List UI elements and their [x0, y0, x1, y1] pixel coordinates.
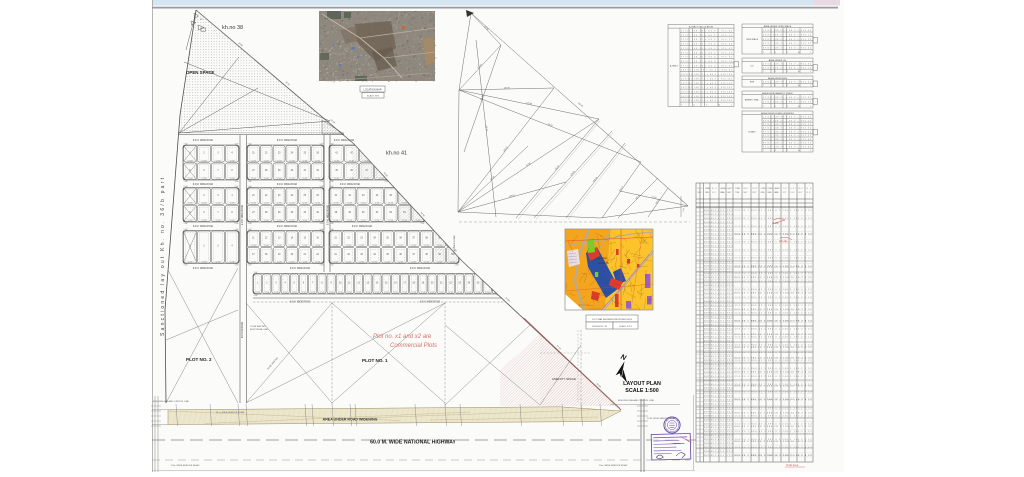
svg-text:20/9 45.2 x 3.1 172.5: 20/9 45.2 x 3.1 172.5 — [704, 455, 733, 457]
svg-text:12.5M: 12.5M — [411, 292, 416, 294]
svg-text:12.5M: 12.5M — [251, 261, 256, 263]
svg-text:20/1 45.2 x 3.1 172.5: 20/1 45.2 x 3.1 172.5 — [704, 423, 733, 425]
svg-text:HECT: HECT — [728, 188, 734, 190]
svg-text:12.5M: 12.5M — [216, 220, 221, 222]
svg-text:BUILDING LINE AND CONTROL LINE: BUILDING LINE AND CONTROL LINE — [618, 399, 654, 402]
svg-text:12.5M: 12.5M — [361, 220, 366, 222]
svg-text:9.0M: 9.0M — [320, 265, 324, 267]
svg-text:12.5M: 12.5M — [315, 220, 320, 222]
svg-text:17/10 148.20 x 66.3 = 915: 17/10 148.20 x 66.3 = 915.02 — [681, 31, 732, 33]
svg-text:20/2 45.2 x 3.1 172.5: 20/2 45.2 x 3.1 172.5 — [704, 427, 733, 429]
svg-text:9.0M: 9.0M — [235, 186, 239, 188]
svg-text:157/114 148.214 x 66.3 =: 157/114 148.214 x 66.3 = 915.142 — [681, 92, 732, 94]
svg-text:20/8 45.2 x 3.1 172.5: 20/8 45.2 x 3.1 172.5 — [704, 344, 733, 346]
svg-text:860.45 1 385.20 1 246.18: 860.45 1 385.20 1 246.18 1 134.20 98.2 8… — [735, 347, 813, 349]
svg-text:12.5M: 12.5M — [188, 160, 193, 162]
svg-text:57/14 148.24 x 66.3 = 915: 57/14 148.24 x 66.3 = 915.42 — [763, 48, 811, 50]
svg-text:Total area: Total area — [786, 463, 799, 467]
svg-text:12.5M: 12.5M — [188, 261, 193, 263]
svg-text:SCALE 1:500: SCALE 1:500 — [625, 388, 659, 394]
svg-text:SNO: SNO — [698, 188, 704, 190]
svg-text:9.0 M. WIDE ROAD: 9.0 M. WIDE ROAD — [277, 139, 298, 142]
svg-text:137/112 148.212 x 66.3 =: 137/112 148.212 x 66.3 = 915.122 — [681, 83, 732, 85]
svg-text:20/8 45.2 x 3.1 172.5: 20/8 45.2 x 3.1 172.5 — [704, 309, 733, 311]
svg-text:12.5M: 12.5M — [359, 245, 364, 247]
svg-text:17/10 148.20 x 66.3 = 915: 17/10 148.20 x 66.3 = 915.02 — [763, 97, 811, 99]
svg-text:20/3 45.2 x 3.1 172.5: 20/3 45.2 x 3.1 172.5 — [704, 360, 733, 362]
svg-text:NET: NET — [744, 188, 750, 190]
svg-text:12.5M: 12.5M — [372, 261, 377, 263]
svg-text:9.0M: 9.0M — [320, 181, 324, 183]
svg-text:20/5 45.2 x 3.1 172.5: 20/5 45.2 x 3.1 172.5 — [704, 332, 733, 334]
svg-text:20/8 45.2 x 3.1 172.5: 20/8 45.2 x 3.1 172.5 — [704, 380, 733, 382]
svg-text:PLOT: PLOT — [753, 188, 759, 190]
svg-text:12.5M: 12.5M — [365, 292, 370, 294]
svg-text:20/8 45.2 x 3.1 172.5: 20/8 45.2 x 3.1 172.5 — [704, 238, 733, 240]
svg-text:12m. WIDE SERVICE ROAD: 12m. WIDE SERVICE ROAD — [171, 464, 200, 467]
svg-text:LIG: LIG — [750, 66, 754, 68]
svg-text:ELECTRICAL LINE: ELECTRICAL LINE — [250, 328, 269, 331]
svg-text:20/8 45.2 x 3.1 172.5: 20/8 45.2 x 3.1 172.5 — [704, 415, 733, 417]
svg-text:12.5M: 12.5M — [334, 203, 339, 205]
svg-text:12 M. WIDE SERVICE ROAD: 12 M. WIDE SERVICE ROAD — [647, 417, 676, 420]
svg-text:154.20 1 860.45 1 385.0 1 246.: 154.20 1 860.45 1 385.0 1 246.1 134.2 8 … — [735, 250, 813, 252]
svg-text:20/9 45.2 x 3.1 172.5: 20/9 45.2 x 3.1 172.5 — [704, 242, 733, 244]
svg-text:12.5M: 12.5M — [292, 292, 297, 294]
svg-text:12.5M: 12.5M — [448, 292, 453, 294]
svg-text:27/11 148.21 x 66.3 = 915: 27/11 148.21 x 66.3 = 915.12 — [763, 67, 811, 69]
svg-text:20/3 45.2 x 3.1 172.5: 20/3 45.2 x 3.1 172.5 — [704, 218, 733, 220]
svg-text:12.5M: 12.5M — [216, 261, 221, 263]
svg-text:12.5M: 12.5M — [320, 292, 325, 294]
svg-text:12.5M: 12.5M — [347, 220, 352, 222]
svg-text:9.0M: 9.0M — [421, 223, 425, 225]
svg-text:860.45 1 385.20 1 246.18: 860.45 1 385.20 1 246.18 1 134.20 98.2 8… — [735, 426, 813, 428]
svg-text:120.59: 120.59 — [503, 87, 510, 89]
svg-text:20/7 45.2 x 3.1 172.5: 20/7 45.2 x 3.1 172.5 — [704, 340, 733, 342]
svg-text:12.5M: 12.5M — [385, 245, 390, 247]
svg-text:12.5M: 12.5M — [457, 292, 462, 294]
svg-text:12.5M: 12.5M — [202, 220, 207, 222]
svg-text:AREA UNDER EWS: AREA UNDER EWS — [768, 77, 787, 80]
svg-text:AREA UNDER ROADS WIDENING: AREA UNDER ROADS WIDENING — [761, 112, 794, 115]
svg-text:17/10 148.20 x 66.3 = 915: 17/10 148.20 x 66.3 = 915.02 — [763, 30, 811, 32]
svg-text:9.0 M. WIDE ROAD: 9.0 M. WIDE ROAD — [334, 139, 355, 142]
svg-text:20/7 45.2 x 3.1 172.5: 20/7 45.2 x 3.1 172.5 — [704, 234, 733, 236]
svg-text:20/9 45.2 x 3.1 172.5: 20/9 45.2 x 3.1 172.5 — [704, 419, 733, 421]
svg-text:12.5M: 12.5M — [338, 292, 343, 294]
svg-text:LAYOUT PLAN: LAYOUT PLAN — [623, 381, 661, 387]
svg-text:20/5 45.2 x 3.1 172.5: 20/5 45.2 x 3.1 172.5 — [704, 368, 733, 370]
svg-text:PLOT NO. 1: PLOT NO. 1 — [362, 358, 388, 363]
svg-text:12m. WIDE SERVICE ROAD: 12m. WIDE SERVICE ROAD — [599, 464, 628, 467]
svg-text:12.5M: 12.5M — [384, 292, 389, 294]
svg-text:12.5M: 12.5M — [346, 261, 351, 263]
svg-text:12.5M: 12.5M — [290, 178, 295, 180]
svg-text:SITE/KH.NO. 38: SITE/KH.NO. 38 — [592, 326, 608, 328]
svg-text:154.20 1 860.45 1 385.0 1 246.: 154.20 1 860.45 1 385.0 1 246.1 134.2 8 … — [735, 360, 813, 362]
svg-text:Plot no. x1 and x2 are: Plot no. x1 and x2 are — [373, 334, 432, 340]
svg-text:9.0M: 9.0M — [320, 223, 324, 225]
svg-text:AREA UNDER OPEN SPACE: AREA UNDER OPEN SPACE — [764, 25, 792, 28]
svg-text:9.0M: 9.0M — [385, 181, 389, 183]
svg-text:20/6 45.2 x 3.1 172.5: 20/6 45.2 x 3.1 172.5 — [704, 265, 733, 267]
svg-text:12.5M: 12.5M — [439, 292, 444, 294]
svg-text:20/8 45.2 x 3.1 172.5: 20/8 45.2 x 3.1 172.5 — [704, 451, 733, 453]
svg-text:12.5M: 12.5M — [315, 160, 320, 162]
svg-text:117/110 148.210 x 66.3 =: 117/110 148.210 x 66.3 = 915.102 — [681, 74, 732, 76]
svg-text:9.0M: 9.0M — [235, 229, 239, 231]
svg-text:12.5M: 12.5M — [290, 261, 295, 263]
svg-text:12.5M: 12.5M — [302, 245, 307, 247]
svg-text:20/9 45.2 x 3.1 172.5: 20/9 45.2 x 3.1 172.5 — [704, 384, 733, 386]
svg-text:12.5M: 12.5M — [264, 160, 269, 162]
svg-text:12.5M: 12.5M — [411, 245, 416, 247]
svg-text:BLT: BLT — [799, 188, 805, 190]
svg-text:20/7 45.2 x 3.1 172.5: 20/7 45.2 x 3.1 172.5 — [704, 447, 733, 449]
svg-text:12.5M: 12.5M — [301, 292, 306, 294]
svg-text:FSI: FSI — [791, 188, 796, 190]
svg-text:12.5M: 12.5M — [393, 292, 398, 294]
svg-text:9.0M: 9.0M — [184, 181, 188, 183]
svg-text:12.5M: 12.5M — [361, 203, 366, 205]
svg-text:20/7 45.2 x 3.1 172.5: 20/7 45.2 x 3.1 172.5 — [704, 411, 733, 413]
svg-text:154.20 1 860.45 1 385.0 1 246.: 154.20 1 860.45 1 385.0 1 246.1 134.2 8 … — [735, 329, 813, 331]
svg-text:12.5M: 12.5M — [202, 160, 207, 162]
svg-text:154.20 1 860.45 1 385.0 1 246.: 154.20 1 860.45 1 385.0 1 246.1 134.2 8 … — [735, 408, 813, 410]
svg-text:154.20 1 860.45 1 385.0 1 246.: 154.20 1 860.45 1 385.0 1 246.1 134.2 8 … — [735, 242, 813, 244]
svg-text:167/115 148.215 x 66.3 =: 167/115 148.215 x 66.3 = 915.152 — [681, 96, 732, 98]
svg-text:9.0 M. WIDE ROAD: 9.0 M. WIDE ROAD — [410, 267, 431, 270]
svg-text:20/4 45.2 x 3.1 172.5: 20/4 45.2 x 3.1 172.5 — [704, 400, 733, 402]
svg-text:12 m. WIDE SERVICE ROAD: 12 m. WIDE SERVICE ROAD — [216, 411, 245, 414]
svg-text:TOT: TOT — [783, 188, 789, 190]
svg-text:20/1 45.2 x 3.1 172.5: 20/1 45.2 x 3.1 172.5 — [704, 317, 733, 319]
svg-text:20/7 45.2 x 3.1 172.5: 20/7 45.2 x 3.1 172.5 — [704, 269, 733, 271]
svg-text:AMENITY SPACE: AMENITY SPACE — [552, 377, 576, 381]
svg-text:12.5M: 12.5M — [277, 203, 282, 205]
svg-text:12.5M: 12.5M — [264, 245, 269, 247]
svg-text:12.5M: 12.5M — [290, 203, 295, 205]
svg-text:12.5M: 12.5M — [277, 178, 282, 180]
svg-text:12.5M: 12.5M — [372, 245, 377, 247]
svg-text:12.5M: 12.5M — [188, 203, 193, 205]
svg-text:12.5M: 12.5M — [251, 245, 256, 247]
svg-text:20/3 45.2 x 3.1 172.5: 20/3 45.2 x 3.1 172.5 — [704, 289, 733, 291]
svg-text:20/4 45.2 x 3.1 172.5: 20/4 45.2 x 3.1 172.5 — [704, 364, 733, 366]
svg-text:12.5M: 12.5M — [424, 261, 429, 263]
svg-text:ROAD: ROAD — [768, 187, 774, 190]
svg-text:154.20 1 860.45 1 385.0 1 246.: 154.20 1 860.45 1 385.0 1 246.1 134.2 8 … — [735, 210, 813, 212]
svg-text:20/3 45.2 x 3.1 172.5: 20/3 45.2 x 3.1 172.5 — [704, 396, 733, 398]
svg-text:12.5M: 12.5M — [347, 292, 352, 294]
svg-text:154.20 1 860.45 1 385.0 1 246.: 154.20 1 860.45 1 385.0 1 246.1 134.2 8 … — [735, 273, 813, 275]
svg-text:9.0M: 9.0M — [248, 223, 252, 225]
svg-text:12.5M: 12.5M — [329, 292, 334, 294]
svg-text:20/2 45.2 x 3.1 172.5: 20/2 45.2 x 3.1 172.5 — [704, 392, 733, 394]
svg-text:KATCHA ROAD: KATCHA ROAD — [241, 322, 244, 339]
svg-text:12.5M: 12.5M — [315, 203, 320, 205]
svg-text:37/12 148.22 x 66.3 = 915: 37/12 148.22 x 66.3 = 915.22 — [763, 124, 811, 126]
svg-text:154.20 1 860.45 1 385.0 1 246.: 154.20 1 860.45 1 385.0 1 246.1 134.2 8 … — [735, 281, 813, 283]
svg-text:NO: NO — [712, 188, 718, 190]
svg-text:12.5M: 12.5M — [290, 220, 295, 222]
svg-text:20/4 45.2 x 3.1 172.5: 20/4 45.2 x 3.1 172.5 — [704, 257, 733, 259]
svg-text:27/11 148.21 x 66.3 = 915: 27/11 148.21 x 66.3 = 915.12 — [763, 120, 811, 122]
svg-text:860.45 1 385.20 1 246.18: 860.45 1 385.20 1 246.18 1 134.20 98.2 8… — [735, 293, 813, 295]
svg-text:12.5M: 12.5M — [388, 203, 393, 205]
svg-text:12.5M: 12.5M — [424, 245, 429, 247]
svg-text:154.20 1 860.45 1 385.0 1 246.: 154.20 1 860.45 1 385.0 1 246.1 134.2 8 … — [735, 226, 813, 228]
svg-text:12.5M: 12.5M — [315, 245, 320, 247]
svg-text:9.0M: 9.0M — [235, 223, 239, 225]
svg-text:12.5M: 12.5M — [216, 160, 221, 162]
svg-text:20/2 45.2 x 3.1 172.5: 20/2 45.2 x 3.1 172.5 — [704, 285, 733, 287]
svg-text:9.0M: 9.0M — [235, 143, 239, 145]
svg-text:12.5M: 12.5M — [302, 178, 307, 180]
svg-text:67/15 148.25 x 66.3 = 915: 67/15 148.25 x 66.3 = 915.52 — [763, 135, 811, 137]
svg-text:9.0M: 9.0M — [184, 223, 188, 225]
svg-text:ward 15: ward 15 — [598, 261, 609, 265]
svg-text:9.0M: 9.0M — [235, 265, 239, 267]
svg-text:60.0 M. WIDE NATIONAL HIGHWAY: 60.0 M. WIDE NATIONAL HIGHWAY — [370, 440, 456, 446]
svg-text:9.0 M. WIDE ROAD: 9.0 M. WIDE ROAD — [352, 225, 373, 228]
svg-text:20/5 45.2 x 3.1 172.5: 20/5 45.2 x 3.1 172.5 — [704, 404, 733, 406]
svg-text:12.5M: 12.5M — [347, 203, 352, 205]
svg-text:12.5M: 12.5M — [356, 292, 361, 294]
svg-text:860.45 1 385.20 1 246.18: 860.45 1 385.20 1 246.18 1 134.20 98.2 8… — [735, 372, 813, 374]
svg-text:12.5M: 12.5M — [202, 178, 207, 180]
svg-text:20/2 45.2 x 3.1 172.5: 20/2 45.2 x 3.1 172.5 — [704, 250, 733, 252]
svg-text:20/7 45.2 x 3.1 172.5: 20/7 45.2 x 3.1 172.5 — [704, 305, 733, 307]
svg-text:FSI: FSI — [791, 192, 795, 194]
svg-text:A-TRACT CALCULATION: A-TRACT CALCULATION — [689, 25, 713, 28]
svg-text:12.5M: 12.5M — [290, 160, 295, 162]
svg-text:9.0 M. WIDE ROAD: 9.0 M. WIDE ROAD — [277, 225, 298, 228]
svg-text:20/5 45.2 x 3.1 172.5: 20/5 45.2 x 3.1 172.5 — [704, 297, 733, 299]
svg-text:12.5M: 12.5M — [346, 245, 351, 247]
svg-text:9.0 M. WIDE ROAD: 9.0 M. WIDE ROAD — [277, 183, 298, 186]
svg-text:57/14 148.24 x 66.3 = 915: 57/14 148.24 x 66.3 = 915.42 — [681, 48, 732, 50]
svg-text:154.20 1 860.45 1 385.0 1 246.: 154.20 1 860.45 1 385.0 1 246.1 134.2 8 … — [735, 368, 813, 370]
svg-text:20/9 45.2 x 3.1 172.5: 20/9 45.2 x 3.1 172.5 — [704, 277, 733, 279]
svg-text:12.5M: 12.5M — [290, 245, 295, 247]
svg-text:AMENITY SPAC: AMENITY SPAC — [745, 99, 760, 102]
svg-text:37/12 148.22 x 66.3 = 915: 37/12 148.22 x 66.3 = 915.22 — [681, 39, 732, 41]
svg-text:20/2 45.2 x 3.1 172.5: 20/2 45.2 x 3.1 172.5 — [704, 356, 733, 358]
svg-text:87/17 148.27 x 66.3 = 915: 87/17 148.27 x 66.3 = 915.72 — [763, 143, 811, 145]
svg-text:20/4 45.2 x 3.1 172.5: 20/4 45.2 x 3.1 172.5 — [704, 435, 733, 437]
svg-text:20/6 45.2 x 3.1 172.5: 20/6 45.2 x 3.1 172.5 — [704, 301, 733, 303]
svg-text:77/16 148.26 x 66.3 = 915: 77/16 148.26 x 66.3 = 915.62 — [763, 139, 811, 141]
svg-text:kh.no 41: kh.no 41 — [386, 151, 407, 157]
svg-text:OPEN: OPEN — [761, 192, 766, 194]
svg-text:6.0 M. WIDE ROAD: 6.0 M. WIDE ROAD — [453, 235, 456, 255]
svg-text:12.5M: 12.5M — [411, 261, 416, 263]
svg-text:9.0 M. WIDE ROAD: 9.0 M. WIDE ROAD — [193, 225, 214, 228]
svg-text:27/11 148.21 x 66.3 = 915: 27/11 148.21 x 66.3 = 915.12 — [763, 102, 811, 104]
svg-text:12.5M: 12.5M — [334, 178, 339, 180]
svg-text:12.5M: 12.5M — [277, 245, 282, 247]
svg-text:9.0M: 9.0M — [235, 181, 239, 183]
svg-text:Gondal: Gondal — [597, 256, 607, 260]
svg-text:12.5M: 12.5M — [476, 292, 481, 294]
svg-text:860.45 1 385.20 1 246.18: 860.45 1 385.20 1 246.18 1 134.20 98.2 8… — [735, 358, 813, 360]
svg-text:ROADS: ROADS — [749, 131, 756, 134]
svg-text:20/9 45.2 x 3.1 172.5: 20/9 45.2 x 3.1 172.5 — [704, 313, 733, 315]
svg-text:LOCATION MAP: LOCATION MAP — [364, 88, 382, 91]
svg-text:12.5M: 12.5M — [230, 261, 235, 263]
svg-text:37/12 148.22 x 66.3 = 915: 37/12 148.22 x 66.3 = 915.22 — [763, 39, 811, 41]
svg-text:12.5M: 12.5M — [230, 178, 235, 180]
svg-text:12.5M: 12.5M — [467, 292, 472, 294]
svg-text:20/8 45.2 x 3.1 172.5: 20/8 45.2 x 3.1 172.5 — [704, 273, 733, 275]
svg-text:17/10 148.20 x 66.3 = 915: 17/10 148.20 x 66.3 = 915.02 — [763, 117, 811, 119]
svg-text:154.20 1 860.45 1 385.0 1 246.: 154.20 1 860.45 1 385.0 1 246.1 134.2 8 … — [735, 313, 813, 315]
svg-text:12.5M: 12.5M — [375, 203, 380, 205]
svg-text:20/6 45.2 x 3.1 172.5: 20/6 45.2 x 3.1 172.5 — [704, 443, 733, 445]
svg-text:20/1 45.2 x 3.1 172.5: 20/1 45.2 x 3.1 172.5 — [704, 246, 733, 248]
svg-text:20/1 45.2 x 3.1 172.5: 20/1 45.2 x 3.1 172.5 — [704, 352, 733, 354]
svg-text:860.45 1 385.20 1 246.18: 860.45 1 385.20 1 246.18 1 134.20 98.2 8… — [735, 321, 813, 323]
svg-text:860.45 1 385.20 1 246.18: 860.45 1 385.20 1 246.18 1 134.20 98.2 8… — [735, 309, 813, 311]
svg-text:154.20 1 860.45 1 385.0 1 246.: 154.20 1 860.45 1 385.0 1 246.1 134.2 8 … — [735, 305, 813, 307]
svg-text:BUILDING LINE AND CONTROL LINE: BUILDING LINE AND CONTROL LINE — [153, 400, 189, 403]
svg-text:12.5M: 12.5M — [264, 292, 269, 294]
svg-text:TOTAL: TOTAL — [735, 187, 740, 190]
svg-text:12.5M: 12.5M — [216, 178, 221, 180]
svg-text:12.5M: 12.5M — [230, 203, 235, 205]
svg-text:12.5M: 12.5M — [216, 203, 221, 205]
svg-text:9.0 M. WIDE ROAD: 9.0 M. WIDE ROAD — [340, 183, 361, 186]
svg-text:12.5M: 12.5M — [274, 292, 279, 294]
svg-text:12.5M: 12.5M — [302, 261, 307, 263]
svg-text:9.0M: 9.0M — [184, 265, 188, 267]
svg-text:9.0M: 9.0M — [254, 295, 258, 297]
svg-text:SCALE: N.T.S: SCALE: N.T.S — [619, 325, 632, 328]
svg-text:SCALE: NTS: SCALE: NTS — [367, 95, 380, 98]
svg-text:12.5M: 12.5M — [188, 178, 193, 180]
svg-text:27/11 148.21 x 66.3 = 915: 27/11 148.21 x 66.3 = 915.12 — [763, 34, 811, 36]
svg-text:RE: RE — [807, 188, 813, 190]
svg-text:20/3 45.2 x 3.1 172.5: 20/3 45.2 x 3.1 172.5 — [704, 431, 733, 433]
svg-text:9.0 M. WIDE ROAD: 9.0 M. WIDE ROAD — [290, 267, 311, 270]
svg-text:17/10 148.20 x 66.3 = 915: 17/10 148.20 x 66.3 = 915.02 — [763, 82, 811, 84]
svg-text:AREA UNDER ROAD WIDENING: AREA UNDER ROAD WIDENING — [323, 418, 378, 422]
svg-text:12.5M: 12.5M — [485, 292, 490, 294]
svg-text:12.5M: 12.5M — [402, 292, 407, 294]
svg-text:67/15 148.25 x 66.3 = 915: 67/15 148.25 x 66.3 = 915.52 — [681, 52, 732, 54]
svg-text:12.5M: 12.5M — [264, 203, 269, 205]
svg-text:12.5M: 12.5M — [334, 160, 339, 162]
svg-text:9.0M: 9.0M — [248, 181, 252, 183]
svg-text:12.5M: 12.5M — [375, 220, 380, 222]
svg-text:154.20 1 860.45 1 385.0 1 246.: 154.20 1 860.45 1 385.0 1 246.1 134.2 8 … — [735, 257, 813, 259]
svg-text:12.5M: 12.5M — [283, 292, 288, 294]
svg-text:154.20 1 860.45 1 385.0 1 246.: 154.20 1 860.45 1 385.0 1 246.1 134.2 8 … — [735, 344, 813, 346]
svg-text:PLOT NO. 2: PLOT NO. 2 — [186, 357, 212, 362]
svg-text:20/6 45.2 x 3.1 172.5: 20/6 45.2 x 3.1 172.5 — [704, 408, 733, 410]
svg-text:154.20 1 860.45 1 385.0 1 246.: 154.20 1 860.45 1 385.0 1 246.1 134.2 8 … — [735, 289, 813, 291]
svg-text:OPEN SPACE: OPEN SPACE — [186, 70, 215, 75]
svg-text:12.5M: 12.5M — [251, 203, 256, 205]
svg-text:12.5M: 12.5M — [398, 245, 403, 247]
svg-text:12.5M: 12.5M — [302, 160, 307, 162]
svg-text:ROAD: ROAD — [768, 191, 773, 194]
svg-text:12.5M: 12.5M — [251, 178, 256, 180]
svg-text:9.0M: 9.0M — [248, 265, 252, 267]
svg-text:860.45 1 385.20 1 246.18: 860.45 1 385.20 1 246.18 1 134.20 98.2 8… — [735, 399, 813, 401]
svg-text:20/1 45.2 x 3.1 172.5: 20/1 45.2 x 3.1 172.5 — [704, 281, 733, 283]
svg-text:12.5M: 12.5M — [421, 292, 426, 294]
svg-text:154.20 1 860.45 1 385.0 1 246.: 154.20 1 860.45 1 385.0 1 246.1 134.2 8 … — [735, 392, 813, 394]
svg-text:154.20 1 860.45 1 385.0 1 246.: 154.20 1 860.45 1 385.0 1 246.1 134.2 8 … — [735, 415, 813, 417]
svg-text:47/13 148.23 x 66.3 = 915: 47/13 148.23 x 66.3 = 915.32 — [763, 128, 811, 130]
svg-text:20/9 45.2 x 3.1 172.5: 20/9 45.2 x 3.1 172.5 — [704, 348, 733, 350]
svg-text:20/5 45.2 x 3.1 172.5: 20/5 45.2 x 3.1 172.5 — [704, 439, 733, 441]
svg-text:154.20 1 860.45 1 385.0 1 246.: 154.20 1 860.45 1 385.0 1 246.1 134.2 8 … — [735, 352, 813, 354]
svg-text:AMEN: AMEN — [775, 191, 780, 194]
svg-text:20/2 45.2 x 3.1 172.5: 20/2 45.2 x 3.1 172.5 — [704, 214, 733, 216]
svg-text:12.5M: 12.5M — [398, 261, 403, 263]
svg-text:12.5M: 12.5M — [264, 261, 269, 263]
svg-text:97/18 148.28 x 66.3 = 915: 97/18 148.28 x 66.3 = 915.82 — [681, 65, 732, 67]
svg-text:(31.11): (31.11) — [779, 239, 787, 243]
svg-text:TO BE SHIFTED: TO BE SHIFTED — [250, 326, 266, 328]
svg-text:860.45 1 385.20 1 246.18: 860.45 1 385.20 1 246.18 1 134.20 98.2 8… — [735, 455, 813, 457]
svg-text:SNO: SNO — [698, 192, 703, 194]
svg-text:AREA: AREA — [721, 187, 727, 190]
svg-text:12.5M: 12.5M — [359, 261, 364, 263]
svg-text:AREA UNDER LIG: AREA UNDER LIG — [769, 59, 787, 62]
svg-text:127/111 148.211 x 66.3 =: 127/111 148.211 x 66.3 = 915.112 — [681, 78, 732, 80]
svg-text:154.20 1 860.45 1 385.0 1 246.: 154.20 1 860.45 1 385.0 1 246.1 134.2 8 … — [735, 336, 813, 338]
svg-text:12.5M: 12.5M — [385, 261, 390, 263]
svg-text:12.5M: 12.5M — [264, 220, 269, 222]
svg-text:9.0 M. WIDE ROAD: 9.0 M. WIDE ROAD — [241, 205, 244, 226]
svg-text:9.0 M. WIDE ROAD: 9.0 M. WIDE ROAD — [193, 267, 214, 270]
svg-text:860.45 1 385.20 1 246.18: 860.45 1 385.20 1 246.18 1 134.20 98.2 8… — [735, 234, 813, 236]
svg-text:860.45 1 385.20 1 246.18: 860.45 1 385.20 1 246.18 1 134.20 98.2 8… — [735, 334, 813, 336]
svg-text:20/5 45.2 x 3.1 172.5: 20/5 45.2 x 3.1 172.5 — [704, 226, 733, 228]
svg-text:12.5M: 12.5M — [302, 203, 307, 205]
svg-text:20/7 45.2 x 3.1 172.5: 20/7 45.2 x 3.1 172.5 — [704, 376, 733, 378]
svg-text:9.0 M. WIDE ROAD: 9.0 M. WIDE ROAD — [193, 183, 214, 186]
svg-text:154.20 1 860.45 1 385.0 1 246.: 154.20 1 860.45 1 385.0 1 246.1 134.2 8 … — [735, 297, 813, 299]
svg-text:12.5M: 12.5M — [255, 292, 260, 294]
svg-text:20/3 45.2 x 3.1 172.5: 20/3 45.2 x 3.1 172.5 — [704, 325, 733, 327]
svg-text:12.5M: 12.5M — [251, 220, 256, 222]
svg-text:20/4 45.2 x 3.1 172.5: 20/4 45.2 x 3.1 172.5 — [704, 329, 733, 331]
svg-text:12.5M: 12.5M — [333, 245, 338, 247]
svg-text:EWS: EWS — [750, 82, 755, 84]
svg-text:87/17 148.27 x 66.3 = 915: 87/17 148.27 x 66.3 = 915.72 — [681, 61, 732, 63]
svg-text:Commercial Plots: Commercial Plots — [390, 343, 437, 349]
svg-text:177/116 148.216 x 66.3 =: 177/116 148.216 x 66.3 = 915.162 — [681, 100, 732, 102]
svg-text:57/14 148.24 x 66.3 = 915: 57/14 148.24 x 66.3 = 915.42 — [763, 132, 811, 134]
svg-text:9.0M: 9.0M — [320, 186, 324, 188]
svg-text:154.20 1 860.45 1 385.0 1 246.: 154.20 1 860.45 1 385.0 1 246.1 134.2 8 … — [735, 431, 813, 433]
svg-text:SURVE: SURVE — [705, 188, 711, 190]
svg-text:17/10 148.20 x 66.3 = 915: 17/10 148.20 x 66.3 = 915.02 — [763, 64, 811, 66]
svg-text:12.5M: 12.5M — [315, 178, 320, 180]
svg-text:AMEN: AMEN — [775, 187, 781, 190]
svg-text:97/18 148.28 x 66.3 = 915: 97/18 148.28 x 66.3 = 915.82 — [763, 146, 811, 148]
svg-text:860.45 1 385.20 1 246.18: 860.45 1 385.20 1 246.18 1 134.20 98.2 8… — [735, 441, 813, 443]
svg-text:12.5M: 12.5M — [230, 220, 235, 222]
svg-text:12.5M: 12.5M — [264, 178, 269, 180]
svg-text:147/113 148.213 x 66.3 =: 147/113 148.213 x 66.3 = 915.132 — [681, 87, 732, 89]
